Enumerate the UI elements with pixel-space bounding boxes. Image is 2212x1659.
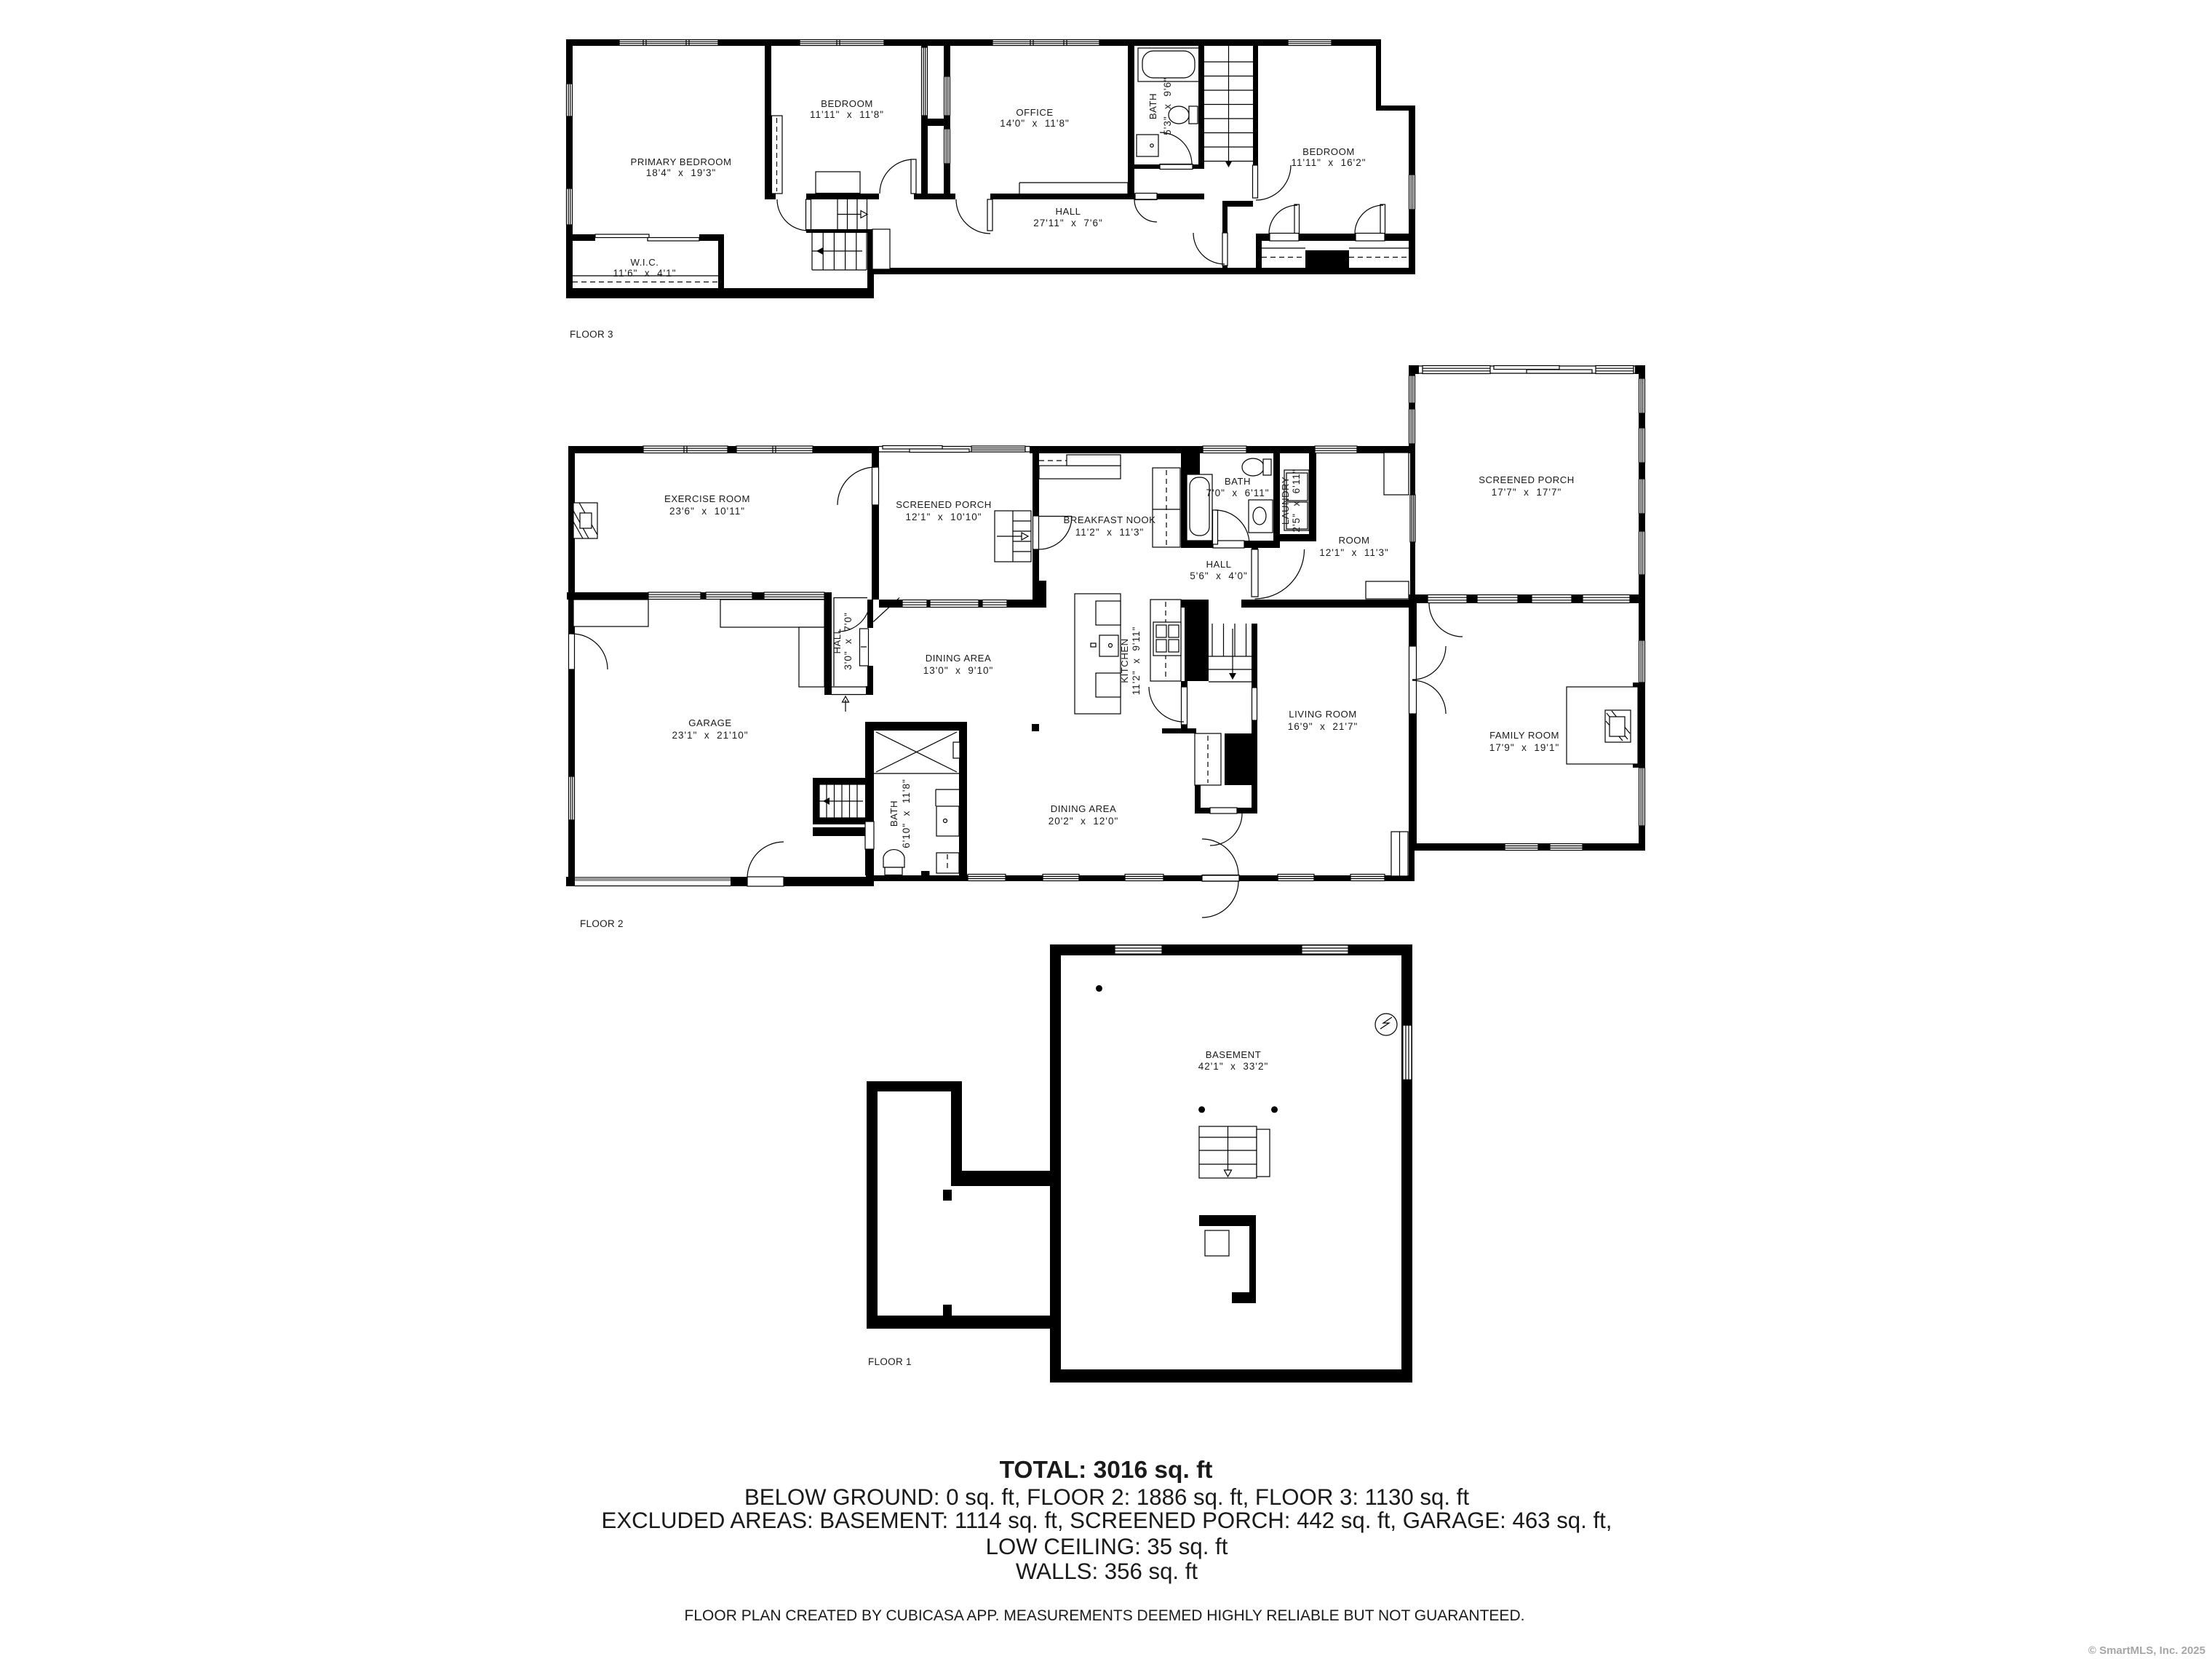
svg-text:12'1" x 10'10": 12'1" x 10'10" — [905, 512, 982, 522]
svg-text:11'6" x 4'1": 11'6" x 4'1" — [613, 268, 676, 279]
svg-text:FLOOR PLAN CREATED BY CUBICASA: FLOOR PLAN CREATED BY CUBICASA APP. MEAS… — [685, 1607, 1525, 1624]
svg-text:OFFICE: OFFICE — [1016, 107, 1053, 118]
svg-text:14'0" x 11'8": 14'0" x 11'8" — [1000, 118, 1070, 129]
svg-text:13'0" x 9'10": 13'0" x 9'10" — [923, 665, 994, 676]
svg-text:FLOOR 2: FLOOR 2 — [580, 918, 624, 929]
svg-text:EXERCISE ROOM: EXERCISE ROOM — [664, 493, 750, 504]
svg-text:3'0" x 7'0": 3'0" x 7'0" — [843, 612, 854, 670]
svg-text:EXCLUDED AREAS: BASEMENT: 1114: EXCLUDED AREAS: BASEMENT: 1114 sq. ft, S… — [602, 1508, 1612, 1533]
svg-text:HALL: HALL — [1056, 206, 1081, 217]
svg-text:16'9" x 21'7": 16'9" x 21'7" — [1288, 721, 1358, 732]
svg-text:SCREENED PORCH: SCREENED PORCH — [896, 499, 992, 510]
svg-text:17'7" x 17'7": 17'7" x 17'7" — [1492, 487, 1562, 498]
svg-text:ROOM: ROOM — [1338, 535, 1369, 546]
svg-text:DINING AREA: DINING AREA — [1051, 803, 1117, 814]
svg-text:5'6" x 4'0": 5'6" x 4'0" — [1190, 570, 1248, 581]
svg-text:2'5" x 6'11": 2'5" x 6'11" — [1291, 469, 1302, 532]
svg-text:BEDROOM: BEDROOM — [1302, 146, 1355, 157]
svg-text:11'2" x 11'3": 11'2" x 11'3" — [1075, 527, 1145, 538]
svg-text:20'2" x 12'0": 20'2" x 12'0" — [1049, 816, 1119, 827]
svg-text:BELOW GROUND: 0 sq. ft, FLOOR: BELOW GROUND: 0 sq. ft, FLOOR 2: 1886 sq… — [744, 1484, 1469, 1510]
svg-text:BREAKFAST NOOK: BREAKFAST NOOK — [1064, 514, 1156, 525]
svg-text:27'11" x 7'6": 27'11" x 7'6" — [1033, 218, 1103, 228]
svg-text:© SmartMLS, Inc. 2025: © SmartMLS, Inc. 2025 — [2088, 1644, 2205, 1657]
svg-text:7'0" x 6'11": 7'0" x 6'11" — [1206, 488, 1269, 498]
svg-text:17'9" x 19'1": 17'9" x 19'1" — [1489, 742, 1560, 753]
svg-text:HALL: HALL — [1206, 559, 1232, 570]
svg-text:23'6" x 10'11": 23'6" x 10'11" — [669, 506, 745, 517]
svg-text:GARAGE: GARAGE — [688, 717, 731, 728]
svg-text:11'2" x 9'11": 11'2" x 9'11" — [1131, 626, 1142, 696]
svg-text:FLOOR 3: FLOOR 3 — [570, 329, 613, 340]
svg-text:KITCHEN: KITCHEN — [1119, 638, 1130, 683]
svg-text:TOTAL: 3016 sq. ft: TOTAL: 3016 sq. ft — [1000, 1457, 1213, 1484]
svg-text:BATH: BATH — [888, 800, 899, 827]
svg-text:BEDROOM: BEDROOM — [821, 98, 873, 109]
svg-text:12'1" x 11'3": 12'1" x 11'3" — [1319, 547, 1389, 558]
svg-text:LIVING ROOM: LIVING ROOM — [1289, 709, 1356, 720]
svg-text:11'11" x 16'2": 11'11" x 16'2" — [1291, 157, 1366, 168]
svg-text:BASEMENT: BASEMENT — [1206, 1049, 1262, 1060]
svg-text:BATH: BATH — [1225, 476, 1251, 487]
svg-text:WALLS: 356 sq. ft: WALLS: 356 sq. ft — [1016, 1559, 1198, 1584]
svg-text:HALL: HALL — [832, 629, 843, 654]
svg-text:FAMILY ROOM: FAMILY ROOM — [1489, 730, 1559, 741]
svg-text:BATH: BATH — [1147, 93, 1158, 119]
svg-text:DINING AREA: DINING AREA — [926, 653, 992, 664]
svg-text:LOW CEILING: 35 sq. ft: LOW CEILING: 35 sq. ft — [986, 1534, 1228, 1559]
svg-text:23'1" x 21'10": 23'1" x 21'10" — [672, 730, 748, 741]
svg-text:18'4" x 19'3": 18'4" x 19'3" — [646, 167, 717, 178]
svg-text:6'10" x 11'8": 6'10" x 11'8" — [901, 779, 912, 848]
svg-text:FLOOR 1: FLOOR 1 — [868, 1356, 912, 1367]
svg-text:PRIMARY BEDROOM: PRIMARY BEDROOM — [631, 156, 732, 167]
svg-text:11'11" x 11'8": 11'11" x 11'8" — [810, 109, 884, 120]
svg-text:W.I.C.: W.I.C. — [631, 257, 659, 268]
svg-text:5'3" x 9'6": 5'3" x 9'6" — [1162, 77, 1173, 135]
svg-text:42'1" x 33'2": 42'1" x 33'2" — [1198, 1061, 1269, 1072]
svg-text:SCREENED PORCH: SCREENED PORCH — [1479, 474, 1575, 485]
svg-text:LAUNDRY: LAUNDRY — [1280, 477, 1291, 525]
